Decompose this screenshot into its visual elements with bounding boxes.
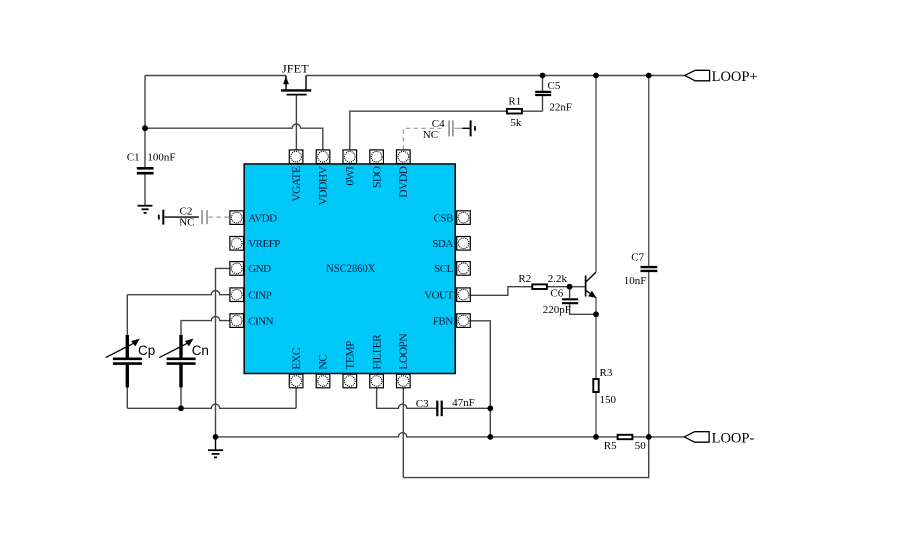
svg-text:R3: R3	[600, 367, 613, 379]
svg-text:JFET: JFET	[282, 64, 309, 76]
svg-text:C7: C7	[631, 251, 644, 263]
svg-text:SDO: SDO	[371, 166, 383, 188]
svg-text:2.2k: 2.2k	[548, 273, 568, 285]
svg-text:Cn: Cn	[192, 343, 209, 358]
svg-text:0WI: 0WI	[345, 166, 357, 186]
svg-text:100nF: 100nF	[147, 152, 175, 164]
svg-text:GND: GND	[248, 263, 271, 275]
svg-text:VDDHV: VDDHV	[318, 165, 330, 205]
svg-text:FBN: FBN	[433, 315, 453, 327]
svg-text:VREFP: VREFP	[248, 238, 280, 250]
svg-text:SDA: SDA	[432, 238, 453, 250]
svg-text:LOOPN: LOOPN	[398, 333, 410, 370]
svg-text:C6: C6	[550, 287, 563, 299]
svg-text:C1: C1	[127, 152, 140, 164]
svg-text:VGATE: VGATE	[291, 166, 303, 202]
svg-text:R1: R1	[508, 96, 521, 108]
svg-text:DVDD: DVDD	[398, 166, 410, 197]
svg-text:47nF: 47nF	[452, 397, 475, 409]
svg-text:Cp: Cp	[138, 343, 155, 358]
svg-text:150: 150	[600, 394, 617, 406]
svg-text:22nF: 22nF	[549, 102, 572, 114]
svg-text:C5: C5	[548, 80, 561, 92]
svg-text:NSC2860X: NSC2860X	[326, 261, 375, 275]
svg-text:CSB: CSB	[434, 212, 453, 224]
svg-text:R5: R5	[604, 440, 617, 452]
svg-text:5k: 5k	[510, 117, 522, 129]
svg-text:EXC: EXC	[291, 347, 303, 369]
svg-text:CINN: CINN	[248, 315, 273, 327]
svg-text:NC: NC	[423, 129, 438, 141]
svg-text:TEMP: TEMP	[345, 341, 357, 370]
svg-text:10nF: 10nF	[624, 275, 647, 287]
svg-text:FILTER: FILTER	[371, 334, 383, 370]
svg-text:R2: R2	[518, 273, 531, 285]
svg-text:C3: C3	[416, 398, 429, 410]
svg-text:LOOP-: LOOP-	[712, 431, 755, 447]
svg-text:NC: NC	[318, 354, 330, 370]
svg-text:NC: NC	[179, 216, 194, 228]
svg-text:SCL: SCL	[434, 263, 453, 275]
svg-text:50: 50	[635, 440, 647, 452]
svg-text:CINP: CINP	[248, 290, 271, 302]
svg-text:LOOP+: LOOP+	[712, 69, 758, 85]
svg-text:220pF: 220pF	[543, 304, 571, 316]
svg-text:VOUT: VOUT	[424, 290, 453, 302]
svg-text:AVDD: AVDD	[248, 212, 277, 224]
